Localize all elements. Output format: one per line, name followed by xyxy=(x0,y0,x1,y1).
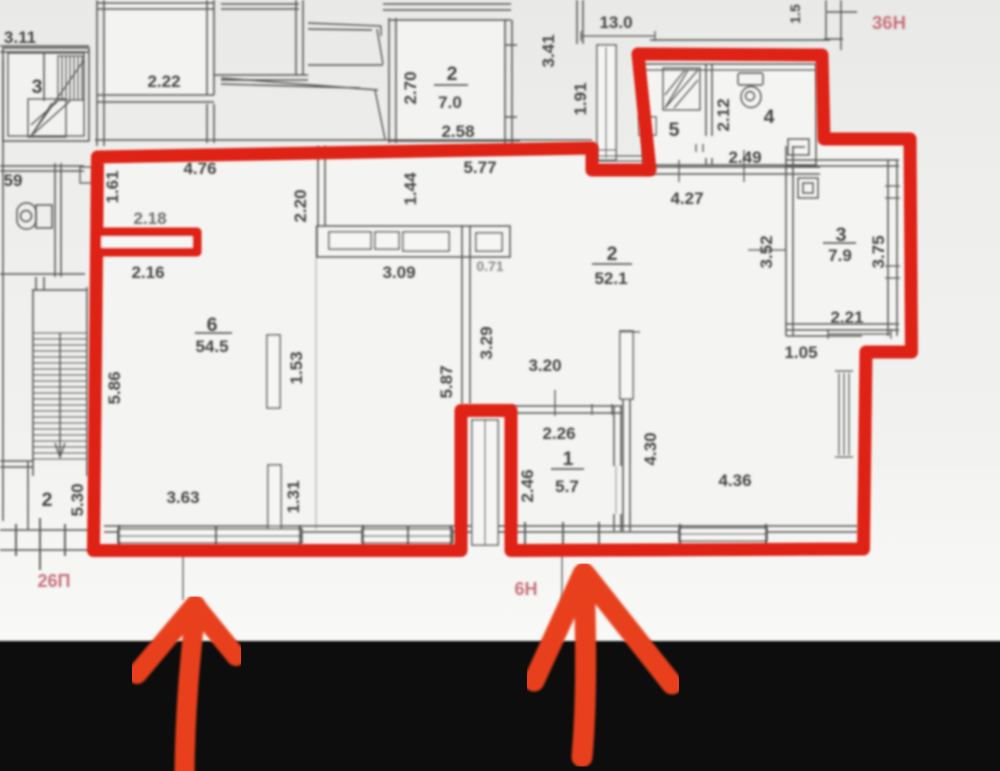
svg-text:3.75: 3.75 xyxy=(869,235,888,268)
svg-text:1.61: 1.61 xyxy=(103,170,122,203)
svg-text:3.11: 3.11 xyxy=(4,28,36,47)
svg-text:2.22: 2.22 xyxy=(147,72,180,91)
svg-text:5.86: 5.86 xyxy=(105,371,124,404)
svg-text:1.53: 1.53 xyxy=(287,351,306,384)
svg-text:3: 3 xyxy=(32,76,43,98)
svg-text:1.5: 1.5 xyxy=(787,4,803,24)
svg-text:4: 4 xyxy=(764,106,775,128)
svg-text:52.1: 52.1 xyxy=(594,269,627,288)
svg-text:3.52: 3.52 xyxy=(757,235,776,268)
svg-text:2.26: 2.26 xyxy=(542,424,575,443)
svg-text:2.16: 2.16 xyxy=(131,263,164,282)
svg-text:2.58: 2.58 xyxy=(441,122,474,141)
svg-text:2.18: 2.18 xyxy=(133,209,166,228)
svg-text:5.77: 5.77 xyxy=(463,158,496,177)
svg-text:36Н: 36Н xyxy=(872,12,906,33)
svg-text:3.29: 3.29 xyxy=(477,326,496,359)
svg-text:7.9: 7.9 xyxy=(828,246,852,265)
svg-text:6Н: 6Н xyxy=(514,579,537,599)
svg-text:26П: 26П xyxy=(38,571,71,591)
svg-text:2.21: 2.21 xyxy=(830,308,863,327)
svg-text:4.36: 4.36 xyxy=(718,471,751,490)
svg-text:3.09: 3.09 xyxy=(382,263,415,282)
svg-text:3.63: 3.63 xyxy=(166,488,199,507)
svg-text:4.30: 4.30 xyxy=(641,432,660,465)
svg-text:1.31: 1.31 xyxy=(284,480,303,513)
svg-text:5.30: 5.30 xyxy=(68,483,87,516)
svg-text:0.71: 0.71 xyxy=(476,258,503,274)
svg-text:2: 2 xyxy=(42,489,53,511)
svg-text:2.12: 2.12 xyxy=(714,98,733,131)
svg-text:2.49: 2.49 xyxy=(728,148,761,167)
svg-text:2.46: 2.46 xyxy=(518,469,537,502)
svg-text:5.87: 5.87 xyxy=(437,365,456,398)
svg-text:1: 1 xyxy=(563,448,574,470)
svg-text:5: 5 xyxy=(669,119,680,141)
svg-text:2.70: 2.70 xyxy=(401,71,420,104)
svg-text:2.20: 2.20 xyxy=(291,189,310,222)
svg-text:3.20: 3.20 xyxy=(528,356,561,375)
svg-text:59: 59 xyxy=(4,171,23,190)
svg-text:7.0: 7.0 xyxy=(438,93,462,112)
svg-text:1.05: 1.05 xyxy=(784,343,817,362)
svg-text:1.44: 1.44 xyxy=(401,172,420,206)
svg-text:2: 2 xyxy=(607,243,618,265)
svg-text:2: 2 xyxy=(447,63,458,85)
svg-text:5.7: 5.7 xyxy=(555,477,579,496)
svg-text:4.27: 4.27 xyxy=(670,189,703,208)
svg-text:4.76: 4.76 xyxy=(183,159,216,178)
svg-text:13.0: 13.0 xyxy=(599,13,632,32)
svg-text:54.5: 54.5 xyxy=(195,337,228,356)
svg-text:3.41: 3.41 xyxy=(539,34,558,67)
svg-text:1.91: 1.91 xyxy=(571,82,590,115)
